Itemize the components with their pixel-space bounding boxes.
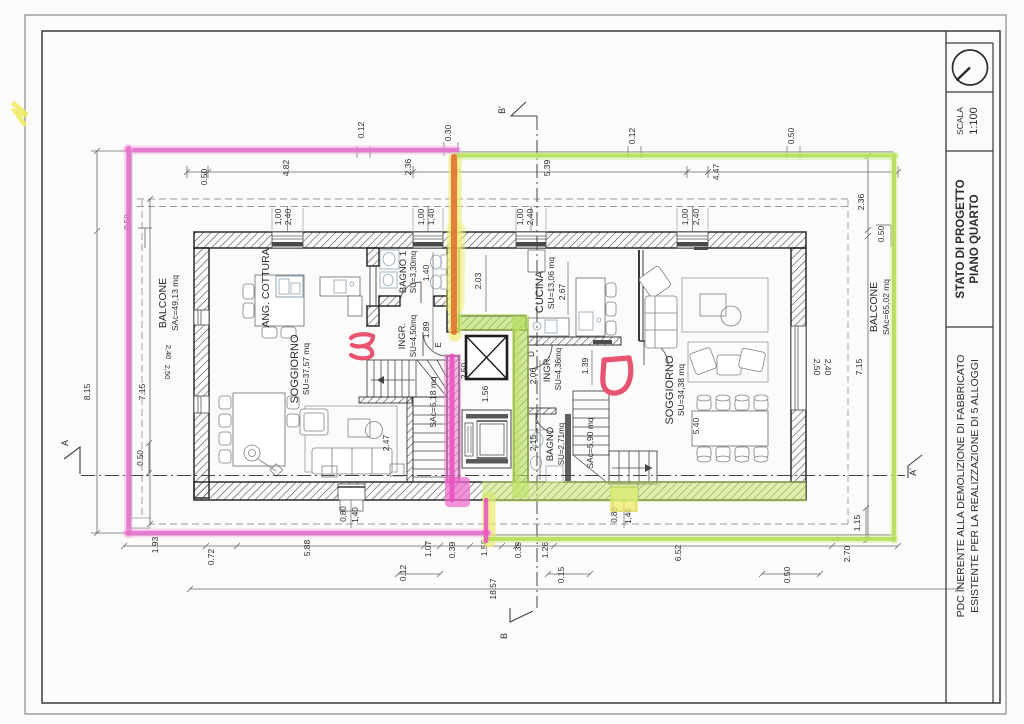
svg-text:1.15: 1.15 (852, 514, 862, 531)
svg-text:PDC INERENTE ALLA DEMOLIZIONE: PDC INERENTE ALLA DEMOLIZIONE DI FABBRIC… (955, 355, 967, 618)
svg-text:0.30: 0.30 (443, 124, 453, 141)
svg-text:1,40: 1,40 (426, 208, 436, 225)
svg-text:0.12: 0.12 (627, 127, 637, 144)
svg-text:SOGGIORNO: SOGGIORNO (289, 334, 301, 404)
svg-text:B: B (499, 633, 509, 639)
svg-text:SU=3,30mq: SU=3,30mq (409, 251, 418, 293)
svg-text:8.15: 8.15 (82, 383, 92, 400)
svg-text:SOGGIORNO: SOGGIORNO (664, 355, 676, 425)
svg-text:A: A (60, 440, 70, 446)
svg-text:INGR.: INGR. (397, 323, 408, 349)
svg-text:0.12: 0.12 (356, 121, 366, 138)
svg-text:SAc=5,90 mq: SAc=5,90 mq (585, 417, 595, 469)
svg-text:BALCONE: BALCONE (868, 282, 880, 332)
svg-text:BALCONE: BALCONE (157, 278, 169, 328)
svg-text:2,40: 2,40 (283, 208, 293, 225)
svg-text:4.82: 4.82 (281, 159, 291, 176)
svg-text:5.39: 5.39 (542, 159, 552, 176)
svg-text:1.07: 1.07 (423, 540, 433, 557)
svg-text:0.72: 0.72 (206, 548, 216, 565)
svg-text:SAc=65,02 mq: SAc=65,02 mq (881, 279, 891, 335)
svg-text:2.36: 2.36 (403, 158, 413, 175)
svg-text:CUCINA: CUCINA (534, 270, 546, 313)
svg-text:0.15: 0.15 (556, 566, 566, 583)
svg-text:2,50: 2,50 (163, 365, 172, 380)
svg-text:2.70: 2.70 (842, 545, 852, 562)
svg-text:1.89: 1.89 (421, 321, 431, 338)
svg-text:2,50: 2,50 (812, 359, 822, 376)
svg-text:6.52: 6.52 (673, 544, 683, 561)
svg-text:ESISTENTE PER LA REALIZZAZIONE: ESISTENTE PER LA REALIZZAZIONE DI 5 ALLO… (969, 359, 981, 613)
svg-text:2,40: 2,40 (164, 345, 173, 360)
svg-text:BAGNO 1: BAGNO 1 (398, 251, 409, 293)
svg-text:B': B' (497, 106, 507, 114)
svg-text:2.36: 2.36 (856, 193, 866, 210)
svg-text:0.39: 0.39 (513, 541, 523, 558)
svg-text:INGR.: INGR. (542, 356, 553, 382)
svg-text:2.67: 2.67 (557, 283, 567, 300)
svg-text:1,00: 1,00 (273, 208, 283, 225)
svg-text:0.50: 0.50 (876, 225, 886, 242)
svg-text:SU=34,38 mq: SU=34,38 mq (676, 364, 686, 416)
svg-text:7.15: 7.15 (854, 358, 864, 375)
svg-text:4.47: 4.47 (711, 163, 721, 180)
svg-text:STATO DI PROGETTO: STATO DI PROGETTO (955, 179, 967, 298)
svg-text:2.47: 2.47 (381, 434, 391, 451)
svg-text:0,80: 0,80 (339, 506, 348, 522)
svg-text:1.56: 1.56 (480, 385, 490, 402)
svg-text:5.40: 5.40 (691, 417, 701, 434)
svg-text:PIANO QUARTO: PIANO QUARTO (969, 194, 981, 283)
svg-text:2.03: 2.03 (473, 272, 483, 289)
svg-text:2,40: 2,40 (525, 208, 535, 225)
svg-text:1.93: 1.93 (150, 536, 160, 553)
svg-text:A': A' (908, 468, 918, 476)
svg-text:0.50: 0.50 (782, 566, 792, 583)
svg-text:1:100: 1:100 (968, 107, 980, 135)
svg-text:1,00: 1,00 (515, 208, 525, 225)
svg-text:SAc=5,18 mq: SAc=5,18 mq (428, 376, 438, 428)
svg-text:SU=2,71mq: SU=2,71mq (557, 423, 566, 465)
svg-text:ANG. COTTURA: ANG. COTTURA (260, 248, 272, 327)
svg-text:SU=37,57 mq: SU=37,57 mq (301, 343, 311, 395)
svg-text:1.26: 1.26 (540, 541, 550, 558)
svg-text:0.39: 0.39 (447, 541, 457, 558)
svg-text:1,40: 1,40 (351, 507, 360, 523)
svg-text:1.39: 1.39 (580, 357, 590, 374)
svg-text:E: E (434, 342, 443, 347)
svg-text:2,40: 2,40 (691, 208, 701, 225)
svg-text:7.15: 7.15 (137, 383, 147, 400)
svg-text:SU=13,06 mq: SU=13,06 mq (546, 257, 556, 309)
svg-text:1,00: 1,00 (416, 208, 426, 225)
svg-text:BAGNO: BAGNO (545, 427, 556, 461)
svg-text:1.40: 1.40 (421, 264, 431, 281)
svg-text:SAc=49,13 mq: SAc=49,13 mq (170, 275, 180, 331)
svg-text:2,40: 2,40 (823, 359, 833, 376)
svg-text:SU=4,36mq: SU=4,36mq (554, 348, 563, 390)
svg-text:0.50: 0.50 (136, 450, 145, 466)
svg-text:SCALA: SCALA (955, 107, 965, 135)
svg-text:SU=4,50mq: SU=4,50mq (409, 315, 418, 357)
svg-text:0.50: 0.50 (199, 168, 209, 185)
svg-text:0.12: 0.12 (398, 564, 408, 581)
svg-text:5.88: 5.88 (302, 539, 312, 556)
svg-text:1,00: 1,00 (680, 208, 690, 225)
svg-text:18.57: 18.57 (488, 578, 498, 600)
svg-text:0.50: 0.50 (786, 127, 796, 144)
